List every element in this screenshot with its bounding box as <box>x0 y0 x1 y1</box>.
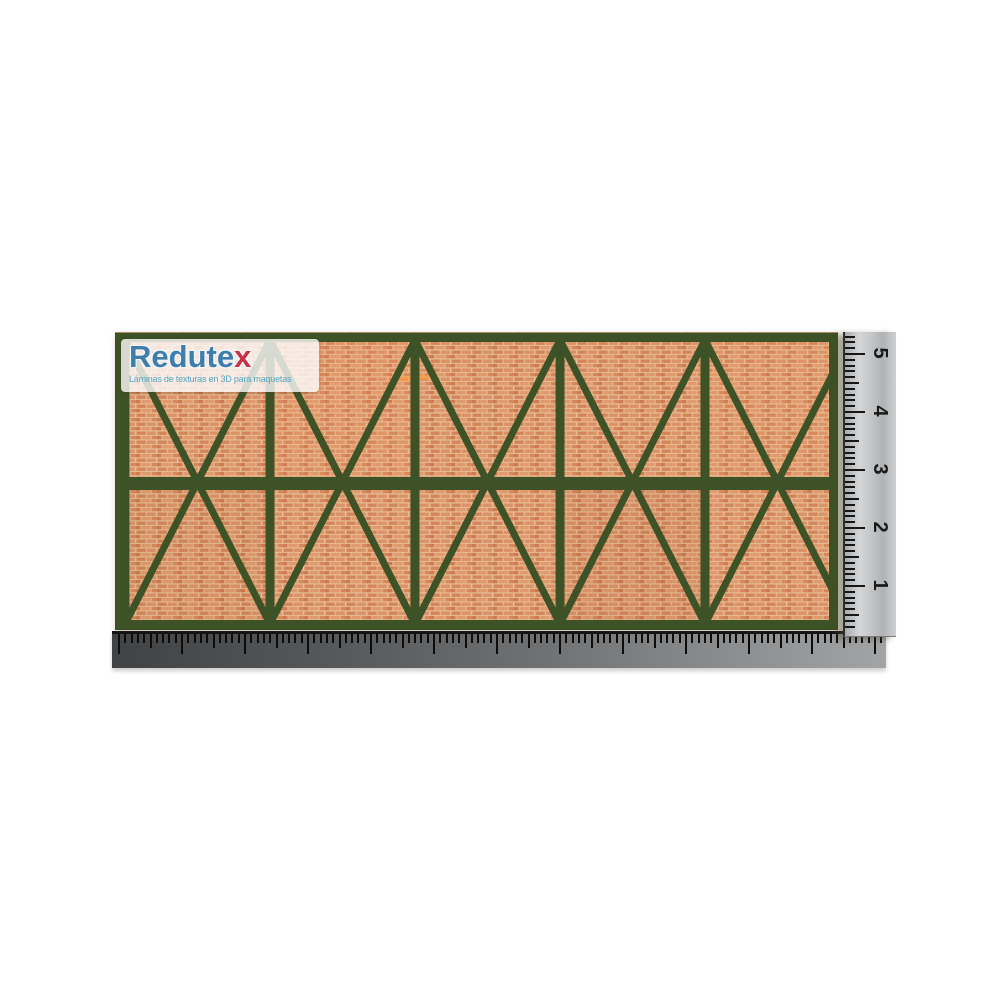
ruler-tick <box>244 634 246 654</box>
ruler-number: 4 <box>868 399 892 423</box>
ruler-tick <box>225 634 227 643</box>
ruler-tick <box>845 521 855 523</box>
ruler-tick <box>521 634 523 643</box>
ruler-tick <box>313 634 315 643</box>
ruler-tick <box>641 634 643 643</box>
ruler-tick <box>439 634 441 643</box>
ruler-tick <box>748 634 750 654</box>
ruler-tick <box>162 634 164 643</box>
ruler-tick <box>845 417 855 419</box>
ruler-tick <box>845 608 855 610</box>
ruler-tick <box>647 634 649 643</box>
ruler-tick <box>845 527 865 529</box>
ruler-tick <box>250 634 252 643</box>
ruler-tick <box>471 634 473 643</box>
ruler-tick <box>635 634 637 643</box>
ruler-tick <box>845 498 859 500</box>
ruler-tick <box>622 634 624 654</box>
ruler-tick <box>845 585 865 587</box>
ruler-number: 1 <box>868 573 892 597</box>
ruler-tick <box>628 634 630 643</box>
ruler-tick <box>150 634 152 648</box>
ruler-tick <box>263 634 265 643</box>
ruler-tick <box>427 634 429 643</box>
ruler-tick <box>452 634 454 643</box>
logo-brand-main: Redute <box>129 339 234 374</box>
ruler-tick <box>845 573 855 575</box>
vertical-ruler: 54321 <box>843 332 896 637</box>
ruler-tick <box>282 634 284 643</box>
ruler-tick <box>845 533 855 535</box>
ruler-tick <box>845 341 855 343</box>
ruler-tick <box>131 634 133 643</box>
ruler-tick <box>845 388 855 390</box>
ruler-tick <box>175 634 177 643</box>
ruler-tick <box>672 634 674 643</box>
ruler-tick <box>137 634 139 643</box>
ruler-tick <box>559 634 561 654</box>
ruler-tick <box>345 634 347 643</box>
ruler-tick <box>786 634 788 643</box>
product-photo: 54321 Redutex Láminas de texturas en 3D … <box>0 0 1000 1000</box>
ruler-tick <box>301 634 303 643</box>
ruler-tick <box>698 634 700 643</box>
ruler-tick <box>845 475 855 477</box>
ruler-tick <box>591 634 593 648</box>
ruler-tick <box>845 504 855 506</box>
ruler-tick <box>502 634 504 643</box>
ruler-tick <box>219 634 221 643</box>
ruler-tick <box>351 634 353 643</box>
ruler-tick <box>845 394 855 396</box>
ruler-tick <box>326 634 328 643</box>
ruler-tick <box>339 634 341 648</box>
ruler-tick <box>874 634 876 654</box>
ruler-tick <box>717 634 719 648</box>
ruler-tick <box>332 634 334 643</box>
ruler-tick <box>845 626 855 628</box>
ruler-tick <box>276 634 278 648</box>
ruler-tick <box>845 434 855 436</box>
ruler-tick <box>490 634 492 643</box>
ruler-tick <box>845 568 855 570</box>
ruler-tick <box>845 620 855 622</box>
ruler-tick <box>805 634 807 643</box>
ruler-number: 5 <box>868 341 892 365</box>
ruler-tick <box>383 634 385 643</box>
ruler-tick <box>845 411 865 413</box>
ruler-tick <box>845 579 855 581</box>
ruler-tick <box>845 614 859 616</box>
ruler-tick <box>528 634 530 648</box>
ruler-tick <box>206 634 208 643</box>
ruler-tick <box>845 446 855 448</box>
ruler-number: 3 <box>868 457 892 481</box>
ruler-tick <box>187 634 189 643</box>
ruler-tick <box>754 634 756 643</box>
ruler-tick <box>845 347 855 349</box>
ruler-tick <box>553 634 555 643</box>
ruler-tick <box>294 634 296 643</box>
ruler-tick <box>845 556 859 558</box>
ruler-tick <box>414 634 416 643</box>
ruler-tick <box>257 634 259 643</box>
logo-brand: Redutex <box>129 341 311 373</box>
ruler-tick <box>540 634 542 643</box>
ruler-tick <box>168 634 170 643</box>
ruler-tick <box>515 634 517 643</box>
ruler-tick <box>238 634 240 643</box>
ruler-tick <box>845 492 855 494</box>
ruler-tick <box>370 634 372 654</box>
ruler-tick <box>118 634 120 654</box>
ruler-tick <box>845 452 855 454</box>
ruler-tick <box>780 634 782 648</box>
ruler-tick <box>845 469 865 471</box>
ruler-tick <box>761 634 763 643</box>
ruler-tick <box>845 486 855 488</box>
ruler-tick <box>830 634 832 643</box>
ruler-tick <box>395 634 397 643</box>
ruler-tick <box>307 634 309 654</box>
ruler-tick <box>465 634 467 648</box>
ruler-tick <box>376 634 378 643</box>
ruler-tick <box>288 634 290 643</box>
logo-brand-x: x <box>234 339 251 374</box>
ruler-tick <box>483 634 485 643</box>
ruler-tick <box>792 634 794 643</box>
ruler-tick <box>773 634 775 643</box>
ruler-tick <box>433 634 435 654</box>
ruler-tick <box>710 634 712 643</box>
ruler-tick <box>845 428 855 430</box>
ruler-tick <box>408 634 410 643</box>
ruler-tick <box>845 597 855 599</box>
ruler-tick <box>845 550 855 552</box>
ruler-tick <box>143 634 145 643</box>
ruler-tick <box>845 591 855 593</box>
ruler-tick <box>458 634 460 643</box>
ruler-tick <box>194 634 196 643</box>
ruler-tick <box>691 634 693 643</box>
ruler-tick <box>845 515 855 517</box>
ruler-tick <box>660 634 662 643</box>
ruler-tick <box>389 634 391 643</box>
ruler-tick <box>845 481 855 483</box>
ruler-tick <box>509 634 511 643</box>
ruler-tick <box>845 440 859 442</box>
ruler-tick <box>572 634 574 643</box>
ruler-tick <box>704 634 706 643</box>
ruler-tick <box>269 634 271 643</box>
ruler-number: 2 <box>868 515 892 539</box>
ruler-tick <box>597 634 599 643</box>
ruler-tick <box>320 634 322 643</box>
logo-tagline: Láminas de texturas en 3D para maquetas <box>129 374 311 384</box>
ruler-tick <box>402 634 404 648</box>
ruler-tick <box>679 634 681 643</box>
ruler-tick <box>845 510 855 512</box>
ruler-tick <box>824 634 826 643</box>
ruler-tick <box>496 634 498 654</box>
ruler-tick <box>200 634 202 643</box>
ruler-tick <box>231 634 233 643</box>
ruler-tick <box>666 634 668 643</box>
ruler-tick <box>729 634 731 643</box>
ruler-tick <box>578 634 580 643</box>
ruler-tick <box>845 359 855 361</box>
ruler-tick <box>811 634 813 654</box>
ruler-tick <box>845 562 855 564</box>
ruler-tick <box>477 634 479 643</box>
ruler-tick <box>845 544 855 546</box>
ruler-tick <box>845 382 859 384</box>
ruler-tick <box>845 353 865 355</box>
ruler-tick <box>565 634 567 643</box>
ruler-tick <box>845 602 855 604</box>
ruler-tick <box>845 405 855 407</box>
ruler-tick <box>124 634 126 643</box>
bottom-ruler <box>112 631 886 668</box>
ruler-tick <box>357 634 359 643</box>
ruler-tick <box>685 634 687 654</box>
ruler-tick <box>446 634 448 643</box>
ruler-tick <box>845 370 855 372</box>
ruler-tick <box>420 634 422 643</box>
ruler-tick <box>603 634 605 643</box>
ruler-tick <box>723 634 725 643</box>
ruler-tick <box>584 634 586 643</box>
ruler-tick <box>364 634 366 643</box>
ruler-tick <box>845 539 855 541</box>
ruler-tick <box>609 634 611 643</box>
ruler-tick <box>767 634 769 643</box>
ruler-tick <box>845 457 855 459</box>
ruler-tick <box>156 634 158 643</box>
ruler-tick <box>742 634 744 643</box>
ruler-tick <box>546 634 548 643</box>
ruler-tick <box>845 463 855 465</box>
ruler-tick <box>798 634 800 643</box>
ruler-tick <box>845 336 855 338</box>
ruler-tick <box>616 634 618 643</box>
ruler-tick <box>845 399 855 401</box>
ruler-tick <box>534 634 536 643</box>
ruler-tick <box>845 365 855 367</box>
ruler-tick <box>836 634 838 643</box>
ruler-tick <box>654 634 656 648</box>
ruler-tick <box>845 423 855 425</box>
ruler-tick <box>181 634 183 654</box>
ruler-tick <box>735 634 737 643</box>
ruler-tick <box>817 634 819 643</box>
ruler-tick <box>213 634 215 648</box>
redutex-logo: Redutex Láminas de texturas en 3D para m… <box>121 339 319 392</box>
ruler-tick <box>845 376 855 378</box>
